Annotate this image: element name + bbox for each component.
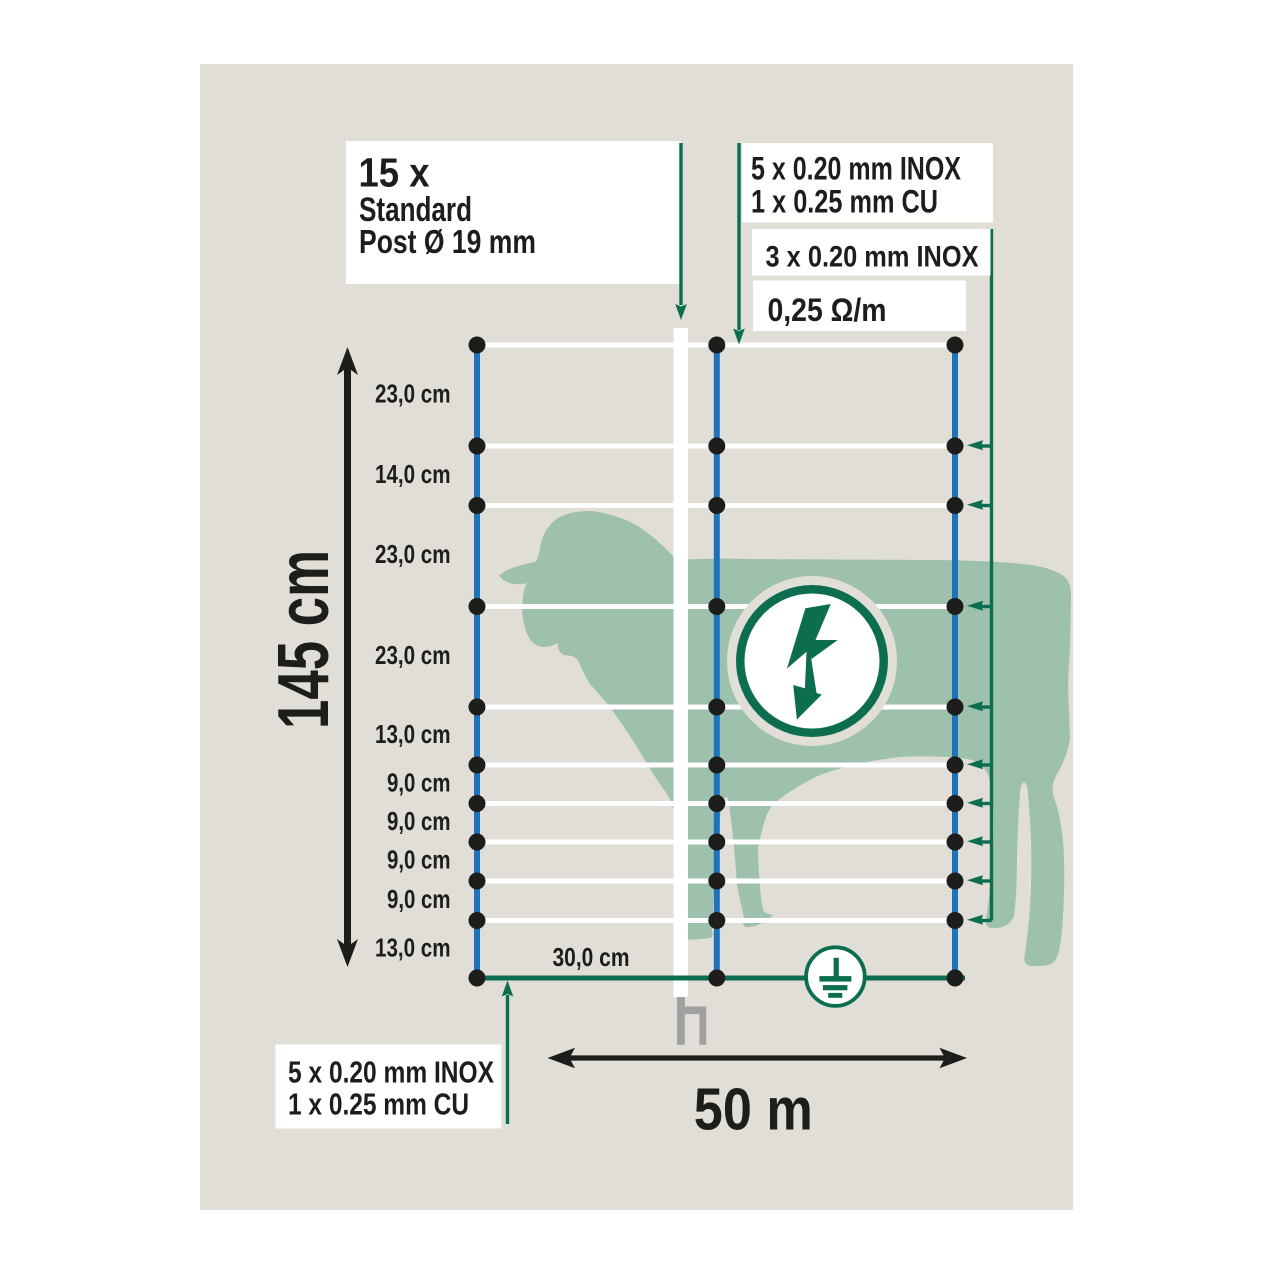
svg-text:9,0 cm: 9,0 cm [387, 767, 451, 797]
svg-text:23,0 cm: 23,0 cm [375, 379, 451, 409]
svg-text:13,0 cm: 13,0 cm [375, 719, 451, 749]
svg-text:30,0 cm: 30,0 cm [553, 942, 630, 972]
svg-text:Post Ø 19 mm: Post Ø 19 mm [359, 224, 536, 261]
svg-text:14,0 cm: 14,0 cm [375, 459, 451, 489]
svg-text:23,0 cm: 23,0 cm [375, 539, 451, 569]
svg-text:15 x: 15 x [359, 150, 430, 196]
svg-text:5 x 0.20 mm INOX: 5 x 0.20 mm INOX [751, 151, 962, 187]
svg-text:23,0 cm: 23,0 cm [375, 640, 451, 670]
svg-text:13,0 cm: 13,0 cm [375, 932, 451, 962]
svg-text:50 m: 50 m [694, 1077, 813, 1143]
svg-text:1 x 0.25 mm CU: 1 x 0.25 mm CU [288, 1087, 469, 1122]
svg-text:5 x 0.20 mm INOX: 5 x 0.20 mm INOX [288, 1055, 494, 1090]
svg-text:3 x 0.20 mm INOX: 3 x 0.20 mm INOX [766, 241, 979, 274]
svg-text:1 x 0.25 mm CU: 1 x 0.25 mm CU [751, 184, 938, 220]
svg-text:0,25 Ω/m: 0,25 Ω/m [768, 292, 887, 328]
svg-text:145 cm: 145 cm [264, 550, 344, 729]
svg-text:9,0 cm: 9,0 cm [387, 806, 451, 836]
svg-text:9,0 cm: 9,0 cm [387, 845, 451, 875]
svg-text:9,0 cm: 9,0 cm [387, 884, 451, 914]
